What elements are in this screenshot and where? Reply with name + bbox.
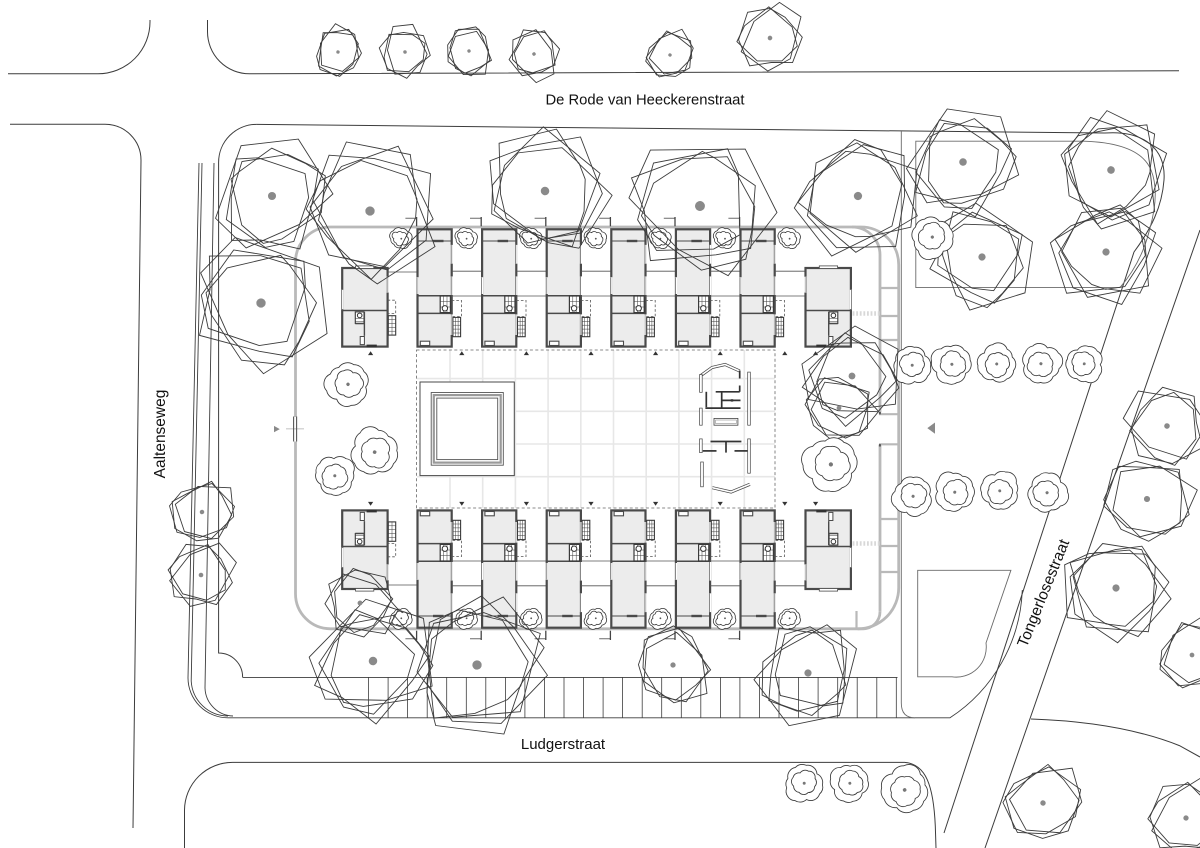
- svg-text:Aaltenseweg: Aaltenseweg: [152, 390, 169, 479]
- svg-text:Ludgerstraat: Ludgerstraat: [521, 736, 606, 753]
- svg-text:De Rode van Heeckerenstraat: De Rode van Heeckerenstraat: [545, 93, 744, 109]
